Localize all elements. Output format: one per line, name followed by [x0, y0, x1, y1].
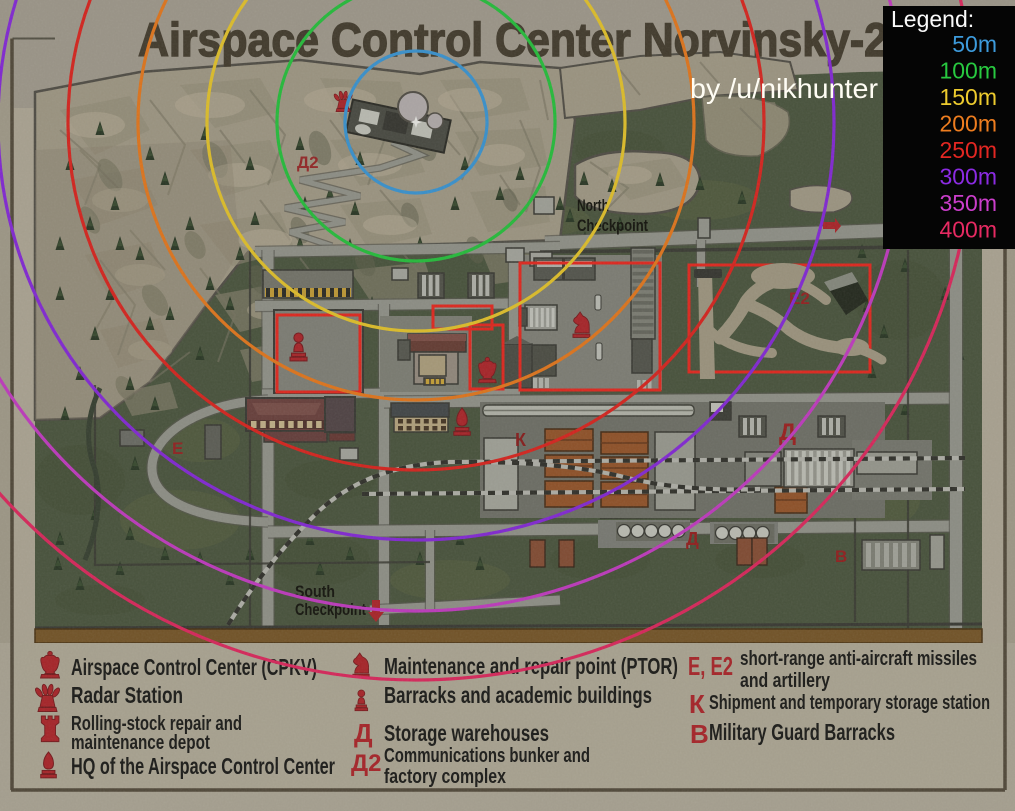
svg-text:by /u/nikhunter: by /u/nikhunter — [690, 73, 878, 104]
svg-text:250m: 250m — [939, 137, 997, 163]
svg-text:50m: 50m — [952, 31, 997, 57]
svg-text:200m: 200m — [939, 111, 997, 137]
svg-text:350m: 350m — [939, 190, 997, 216]
svg-text:Legend:: Legend: — [891, 6, 974, 32]
svg-text:100m: 100m — [939, 58, 997, 84]
svg-text:150m: 150m — [939, 84, 997, 110]
svg-text:400m: 400m — [939, 217, 997, 243]
svg-text:300m: 300m — [939, 164, 997, 190]
